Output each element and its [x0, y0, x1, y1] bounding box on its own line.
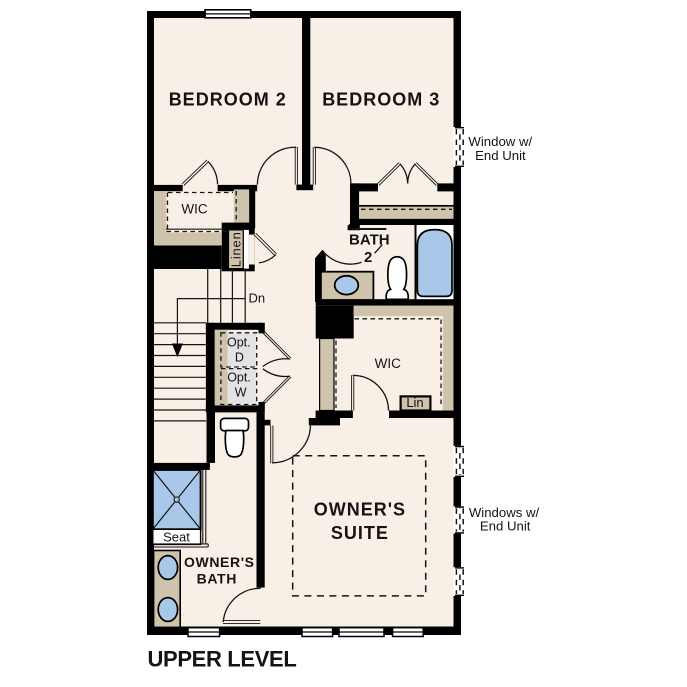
svg-text:2: 2 [364, 249, 372, 266]
svg-text:Opt.: Opt. [227, 371, 251, 385]
svg-text:OWNER'S: OWNER'S [184, 554, 255, 570]
svg-text:Seat: Seat [163, 530, 190, 545]
svg-text:BATH: BATH [349, 231, 390, 248]
svg-text:W: W [235, 386, 247, 400]
svg-text:WIC: WIC [375, 356, 401, 371]
svg-text:End Unit: End Unit [475, 148, 526, 163]
svg-text:BEDROOM 2: BEDROOM 2 [169, 90, 287, 110]
svg-text:Opt.: Opt. [227, 336, 251, 350]
svg-text:End Unit: End Unit [480, 519, 531, 534]
svg-text:BEDROOM 3: BEDROOM 3 [322, 90, 440, 110]
svg-text:WIC: WIC [181, 201, 207, 216]
svg-text:Window w/: Window w/ [468, 134, 532, 149]
svg-text:D: D [235, 351, 244, 365]
svg-text:BATH: BATH [197, 570, 237, 586]
svg-text:OWNER'S: OWNER'S [314, 499, 406, 519]
svg-text:UPPER LEVEL: UPPER LEVEL [148, 647, 297, 672]
svg-text:Lin: Lin [406, 395, 423, 410]
svg-text:Linen: Linen [228, 231, 243, 267]
svg-text:Dn: Dn [249, 291, 266, 306]
svg-text:SUITE: SUITE [331, 523, 389, 543]
